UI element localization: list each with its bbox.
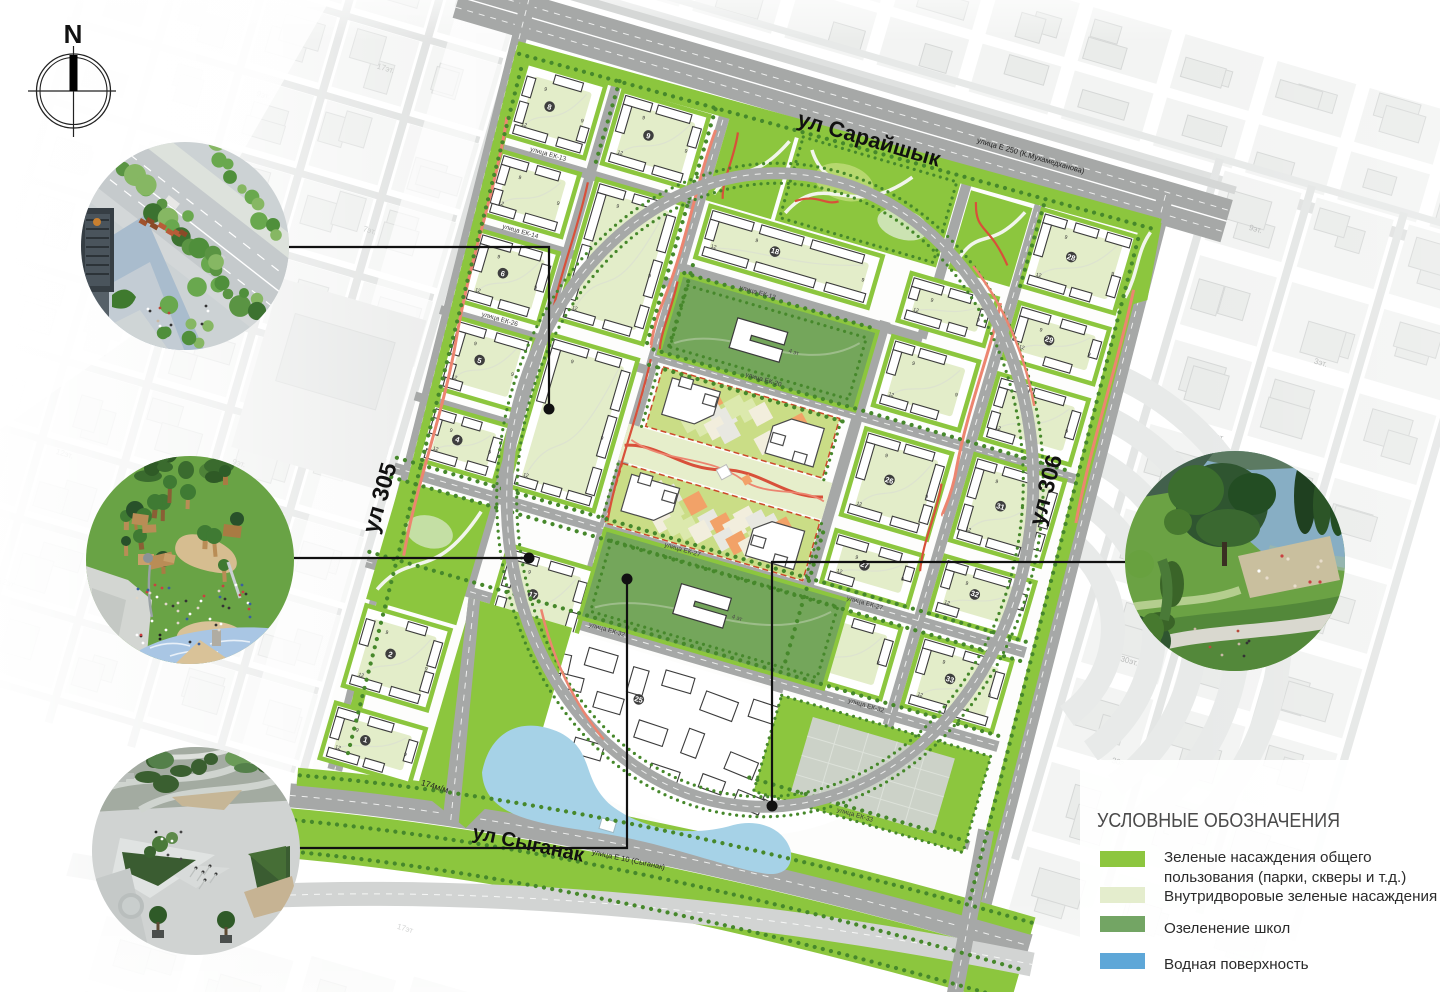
svg-text:N: N [64, 19, 83, 49]
svg-text:Озеленение школ: Озеленение школ [1164, 920, 1290, 937]
svg-text:пользования (парки, скверы и т: пользования (парки, скверы и т.д.) [1164, 869, 1406, 886]
svg-text:Внутридворовые зеленые насажде: Внутридворовые зеленые насаждения [1164, 888, 1437, 905]
svg-text:УСЛОВНЫЕ ОБОЗНАЧЕНИЯ: УСЛОВНЫЕ ОБОЗНАЧЕНИЯ [1097, 809, 1340, 832]
svg-text:Зеленые насаждения общего: Зеленые насаждения общего [1164, 849, 1372, 866]
svg-text:Водная поверхность: Водная поверхность [1164, 956, 1309, 973]
